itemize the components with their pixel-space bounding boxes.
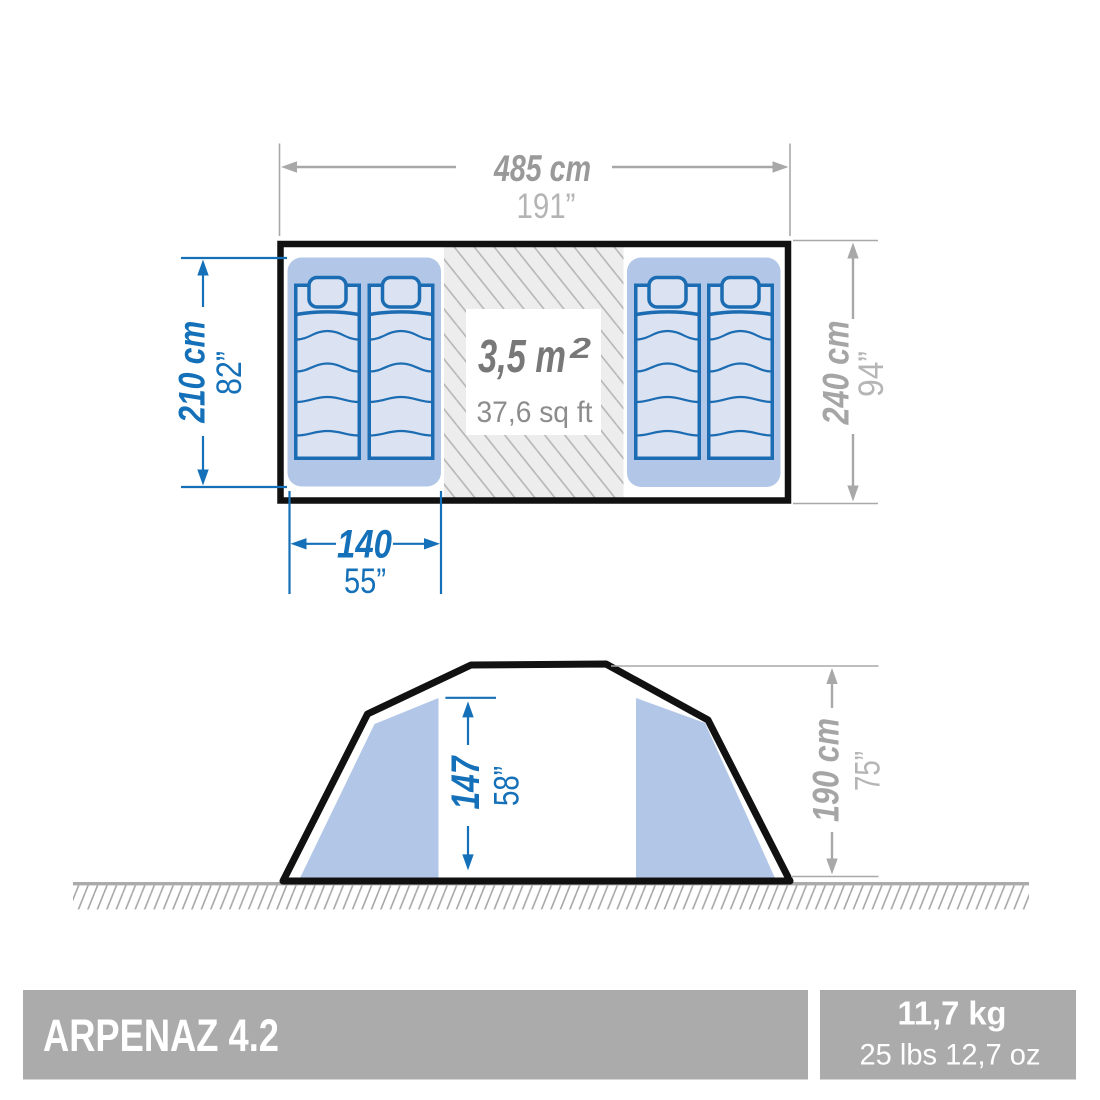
svg-text:240 cm: 240 cm: [816, 321, 857, 426]
svg-text:11,7 kg: 11,7 kg: [898, 995, 1007, 1032]
svg-text:94”: 94”: [852, 351, 891, 397]
svg-text:191”: 191”: [517, 187, 576, 226]
svg-text:190 cm: 190 cm: [806, 718, 847, 822]
svg-text:485 cm: 485 cm: [493, 148, 591, 189]
svg-text:147: 147: [444, 755, 488, 809]
svg-text:55”: 55”: [344, 562, 386, 601]
svg-text:ARPENAZ 4.2: ARPENAZ 4.2: [43, 1010, 279, 1061]
svg-text:75”: 75”: [849, 751, 888, 791]
svg-text:140: 140: [337, 523, 392, 567]
svg-text:2: 2: [569, 333, 591, 365]
svg-text:37,6 sq ft: 37,6 sq ft: [477, 396, 594, 429]
svg-text:210 cm: 210 cm: [172, 321, 213, 424]
svg-text:58”: 58”: [488, 766, 527, 806]
svg-text:25 lbs 12,7 oz: 25 lbs 12,7 oz: [860, 1039, 1041, 1072]
svg-text:82”: 82”: [210, 351, 249, 395]
svg-text:3,5 m: 3,5 m: [478, 330, 566, 382]
